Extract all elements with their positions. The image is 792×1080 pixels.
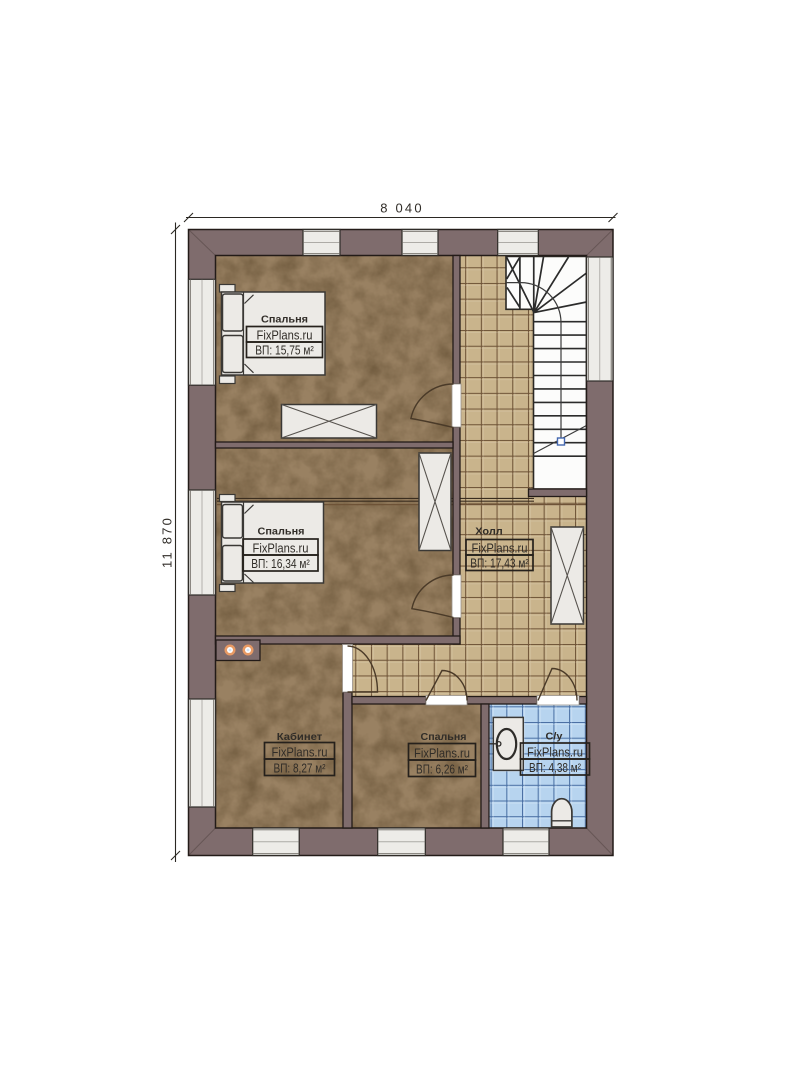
svg-text:ВП: 15,75 м²: ВП: 15,75 м² (255, 344, 314, 358)
svg-text:ВП: 6,26 м²: ВП: 6,26 м² (416, 763, 468, 777)
svg-text:FixPlans.ru: FixPlans.ru (253, 541, 309, 555)
svg-text:FixPlans.ru: FixPlans.ru (527, 745, 583, 759)
svg-text:Спальня: Спальня (261, 314, 308, 325)
svg-text:Спальня: Спальня (421, 732, 467, 743)
svg-text:FixPlans.ru: FixPlans.ru (272, 745, 328, 759)
svg-text:С/у: С/у (546, 731, 564, 742)
svg-text:FixPlans.ru: FixPlans.ru (257, 328, 313, 342)
svg-text:ВП: 16,34 м²: ВП: 16,34 м² (251, 557, 310, 571)
svg-text:FixPlans.ru: FixPlans.ru (472, 541, 528, 555)
svg-text:ВП: 17,43 м²: ВП: 17,43 м² (470, 557, 529, 571)
svg-text:Спальня: Спальня (258, 526, 305, 537)
svg-text:8 040: 8 040 (380, 201, 424, 216)
svg-text:FixPlans.ru: FixPlans.ru (414, 746, 470, 760)
svg-text:ВП: 4,38 м²: ВП: 4,38 м² (529, 761, 581, 775)
svg-text:ВП: 8,27 м²: ВП: 8,27 м² (274, 762, 326, 776)
svg-text:Холл: Холл (475, 526, 503, 537)
svg-text:Кабинет: Кабинет (277, 732, 323, 743)
svg-text:11 870: 11 870 (160, 516, 175, 568)
